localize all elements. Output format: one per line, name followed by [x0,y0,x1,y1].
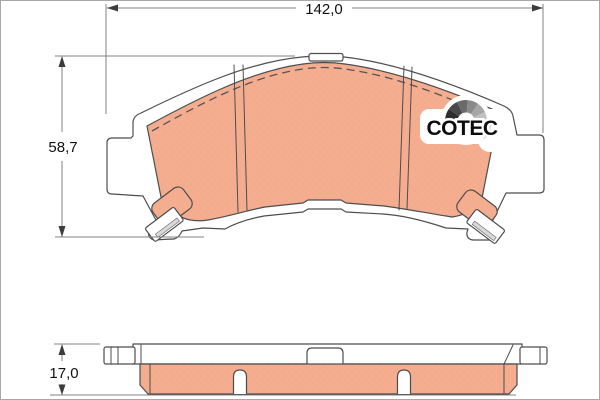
friction-profile-texture [140,364,517,394]
arrowhead-right [532,5,543,12]
arrowhead-left [107,5,118,12]
dimension-label-thickness: 17,0 [49,365,78,382]
dimension-thickness: 17,0 [49,344,100,395]
arrowhead-up [59,344,66,355]
left-lug [104,347,135,364]
arrowhead-down [59,385,66,396]
center-nib-profile [307,348,343,364]
slot-right [398,370,411,394]
front-view: COTEC [107,54,544,245]
brake-pad-drawing-canvas: COTEC [0,0,600,400]
dimension-label-height: 58,7 [48,139,77,156]
right-lug [520,347,547,364]
dimension-label-width: 142,0 [305,1,343,18]
slot-left [234,370,247,394]
logo-text: COTEC [427,117,498,140]
arrowhead-up [59,56,66,67]
bottom-view [50,344,547,395]
center-nib [309,54,343,62]
arrowhead-down [59,226,66,237]
technical-drawing: COTEC [0,0,600,400]
